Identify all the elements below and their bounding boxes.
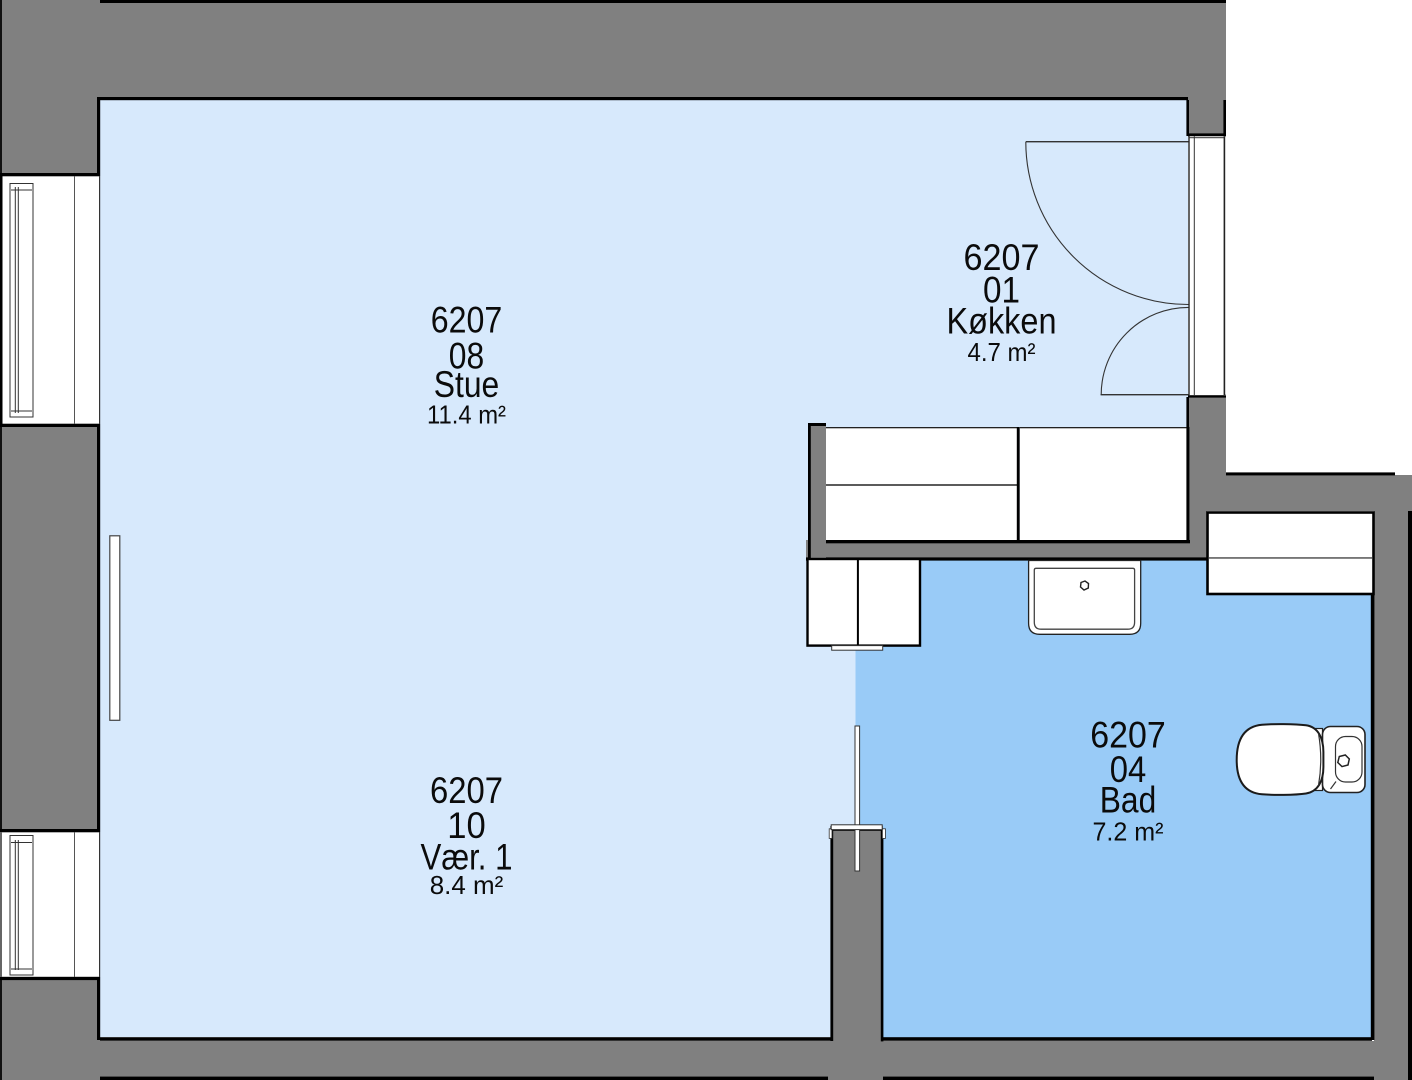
svg-text:4.7 m²: 4.7 m² [968,337,1036,367]
svg-text:6207: 6207 [431,300,503,341]
svg-text:11.4 m²: 11.4 m² [427,400,506,430]
svg-text:Køkken: Køkken [947,301,1057,342]
svg-text:8.4 m²: 8.4 m² [430,870,504,900]
svg-text:Bad: Bad [1100,780,1157,821]
svg-text:7.2 m²: 7.2 m² [1093,817,1164,847]
